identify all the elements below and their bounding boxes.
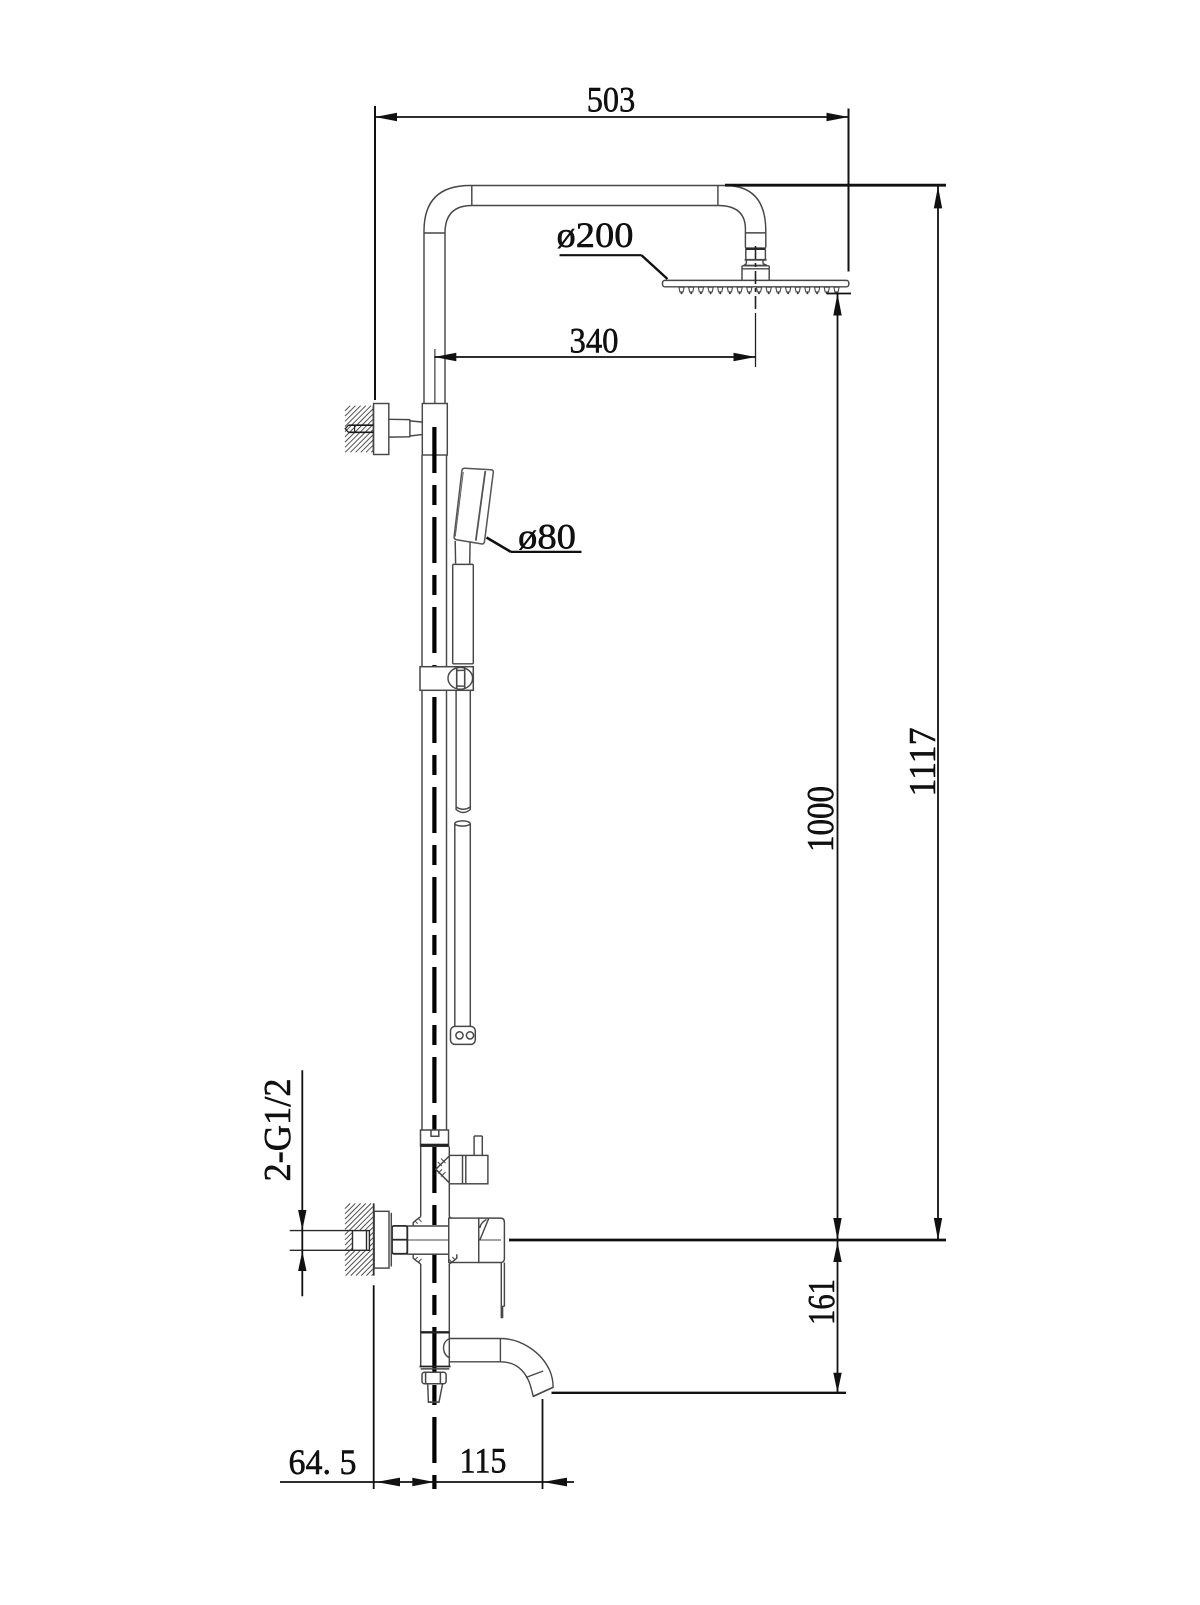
svg-text:2-G1/2: 2-G1/2 (257, 1079, 299, 1182)
svg-text:503: 503 (587, 80, 636, 120)
svg-text:115: 115 (460, 1441, 507, 1481)
svg-text:1000: 1000 (800, 786, 842, 852)
svg-text:1117: 1117 (902, 728, 944, 797)
svg-text:64. 5: 64. 5 (289, 1442, 357, 1482)
svg-text:161: 161 (801, 1279, 843, 1325)
svg-text:340: 340 (570, 320, 619, 360)
svg-text:ø200: ø200 (557, 215, 634, 255)
svg-text:ø80: ø80 (518, 517, 576, 557)
